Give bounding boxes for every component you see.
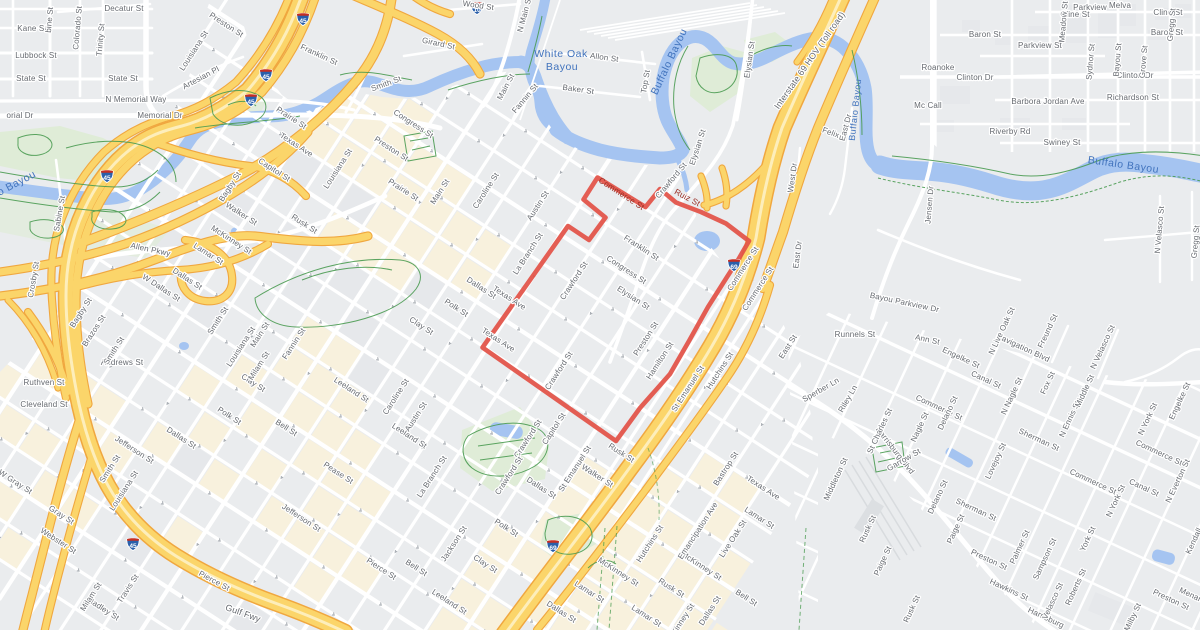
svg-text:Bayou: Bayou: [546, 61, 578, 73]
svg-text:Clinton Dr: Clinton Dr: [956, 73, 993, 82]
svg-text:Baron St: Baron St: [969, 30, 1002, 39]
svg-text:Gregg St: Gregg St: [1190, 224, 1200, 258]
svg-text:Swiney St: Swiney St: [1044, 138, 1082, 147]
svg-text:45: 45: [262, 74, 270, 81]
svg-text:69: 69: [549, 545, 557, 552]
svg-text:45: 45: [299, 18, 307, 25]
svg-text:Riverby Rd: Riverby Rd: [989, 127, 1030, 136]
svg-text:Decatur St: Decatur St: [104, 4, 144, 13]
svg-text:Lubbock St: Lubbock St: [15, 51, 57, 60]
svg-text:Runnels St: Runnels St: [835, 330, 876, 339]
svg-text:orial Dr: orial Dr: [7, 111, 34, 120]
svg-text:Memorial Dr: Memorial Dr: [137, 111, 182, 120]
svg-text:45: 45: [129, 543, 137, 550]
svg-text:Parkview St: Parkview St: [1018, 41, 1063, 50]
svg-text:45: 45: [247, 99, 255, 106]
svg-text:Roanoke: Roanoke: [921, 63, 954, 72]
svg-text:Kane St: Kane St: [17, 24, 47, 33]
svg-text:State St: State St: [16, 74, 46, 83]
svg-text:Clinton Dr: Clinton Dr: [1116, 71, 1153, 80]
svg-text:Mc Call: Mc Call: [914, 101, 942, 110]
svg-text:Ruthven St: Ruthven St: [23, 378, 65, 387]
svg-text:Cleveland St: Cleveland St: [20, 400, 68, 409]
svg-text:White Oak: White Oak: [534, 48, 588, 60]
svg-text:N Memorial Way: N Memorial Way: [106, 95, 167, 104]
svg-text:State St: State St: [108, 74, 138, 83]
svg-text:Richardson St: Richardson St: [1107, 93, 1160, 102]
svg-text:Barbora Jordan Ave: Barbora Jordan Ave: [1011, 97, 1085, 106]
svg-text:Melva: Melva: [1109, 1, 1131, 10]
svg-text:45: 45: [103, 175, 111, 182]
svg-text:Parkview: Parkview: [1073, 3, 1107, 12]
